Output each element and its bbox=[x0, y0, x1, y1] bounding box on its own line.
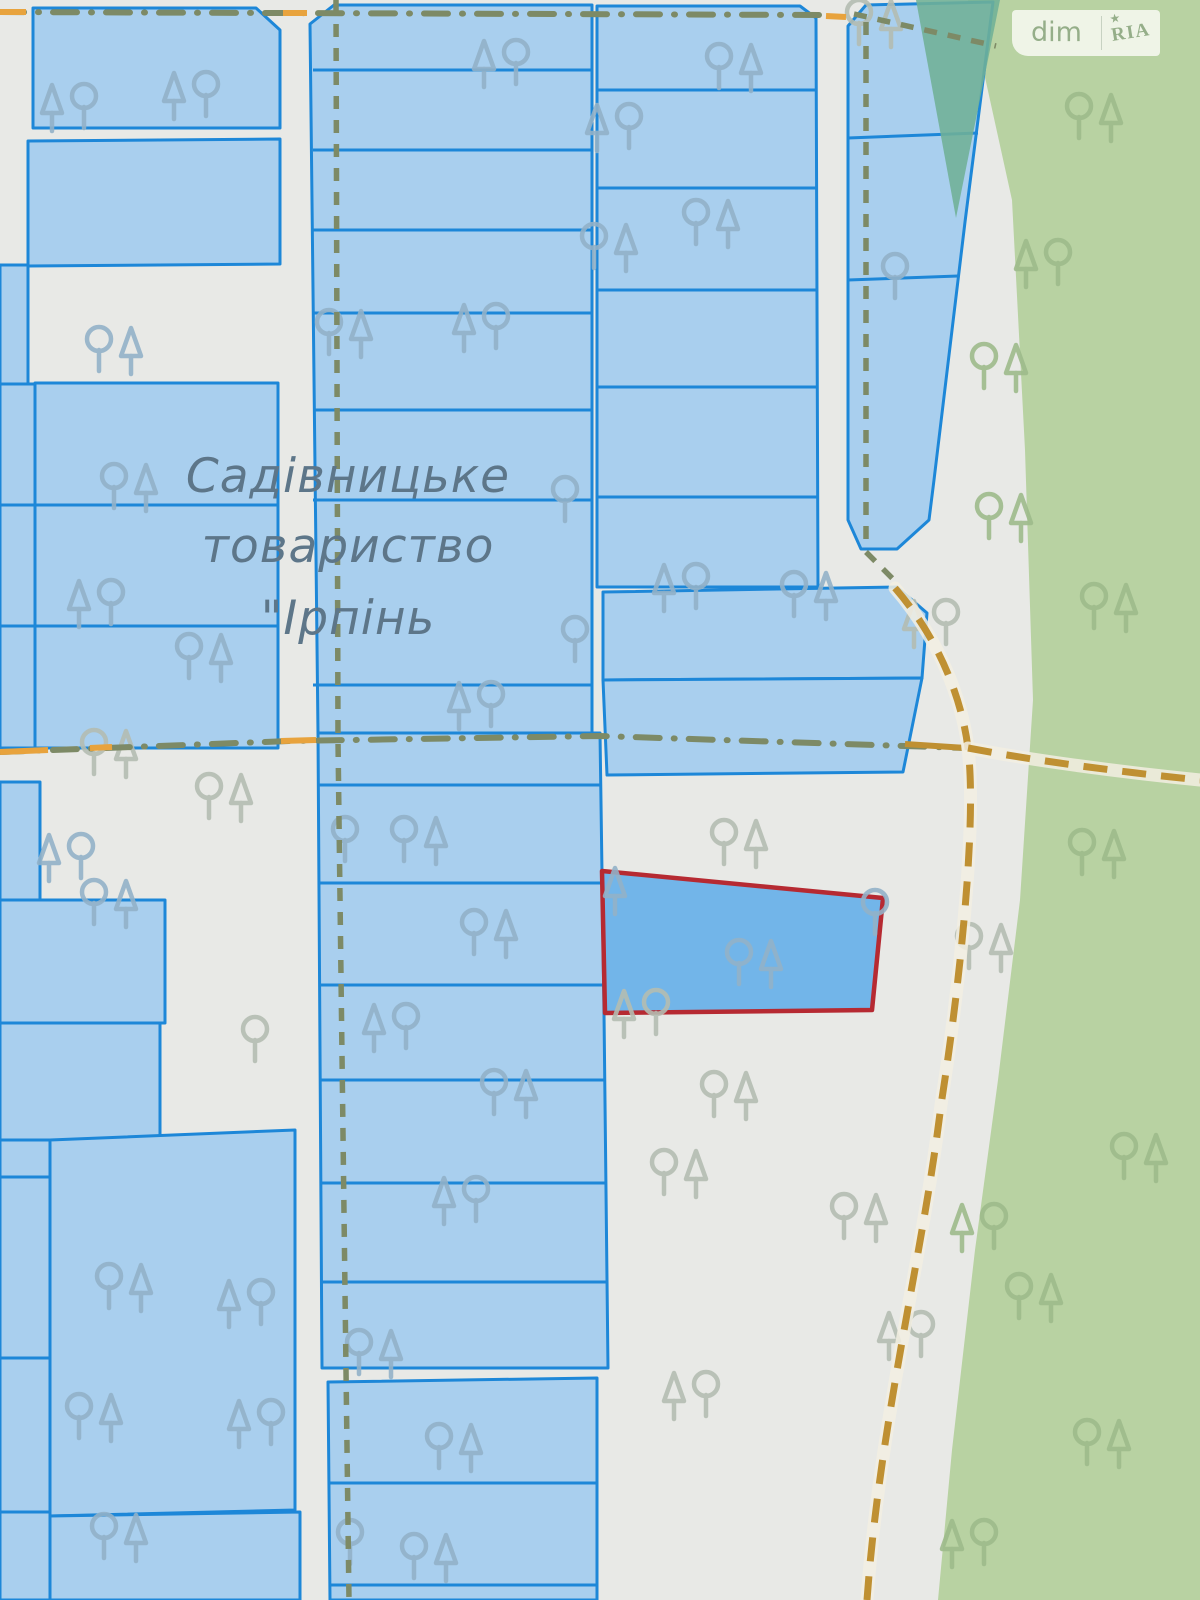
ria-logo: ★ RIA bbox=[1101, 18, 1162, 49]
settlement-label-line2: товариство bbox=[202, 519, 495, 574]
parcel[interactable] bbox=[603, 678, 922, 775]
parcel[interactable] bbox=[0, 626, 35, 748]
parcel[interactable] bbox=[0, 900, 165, 1023]
map-canvas[interactable]: Садівницьке товариство "Ірпінь bbox=[0, 0, 1200, 1600]
watermark-badge: dim ★ RIA bbox=[1012, 10, 1160, 56]
settlement-label-line1: Садівницьке bbox=[186, 449, 510, 504]
dim-logo: dim bbox=[1012, 10, 1101, 56]
parcel[interactable] bbox=[318, 733, 608, 1368]
parcel[interactable] bbox=[0, 505, 35, 626]
parcel[interactable] bbox=[35, 626, 278, 748]
parcel[interactable] bbox=[50, 1130, 295, 1516]
parcel[interactable] bbox=[0, 1177, 50, 1358]
parcel[interactable] bbox=[50, 1512, 300, 1600]
parcel[interactable] bbox=[0, 1358, 50, 1512]
parcel[interactable] bbox=[0, 782, 40, 900]
parcel[interactable] bbox=[597, 6, 818, 587]
parcel[interactable] bbox=[603, 587, 927, 680]
star-icon: ★ bbox=[1108, 11, 1121, 27]
parcel[interactable] bbox=[0, 1140, 50, 1177]
parcel[interactable] bbox=[33, 8, 280, 128]
parcel[interactable] bbox=[0, 265, 28, 384]
parcel[interactable] bbox=[0, 1512, 50, 1600]
parcel[interactable] bbox=[0, 384, 35, 505]
parcel[interactable] bbox=[0, 1023, 160, 1140]
parcel[interactable] bbox=[328, 1378, 597, 1600]
parcel[interactable] bbox=[28, 139, 280, 266]
map-screenshot: Садівницьке товариство "Ірпінь dim ★ RIA bbox=[0, 0, 1200, 1600]
settlement-label-line3: "Ірпінь bbox=[261, 591, 436, 646]
